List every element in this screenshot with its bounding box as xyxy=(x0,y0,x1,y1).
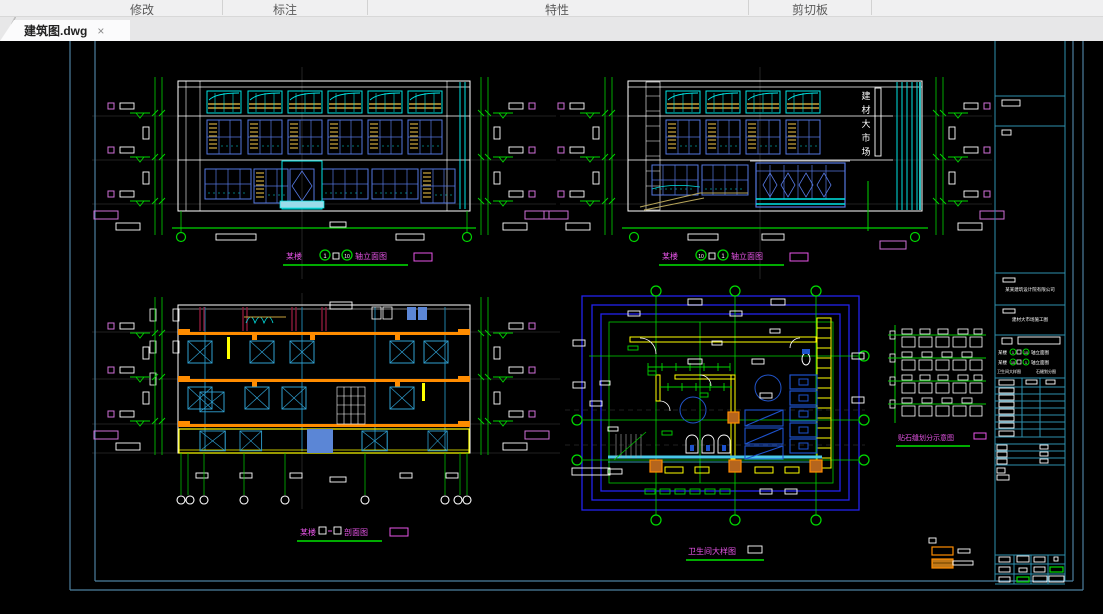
tab-close-icon[interactable]: × xyxy=(97,24,104,38)
svg-text:卫生间大样图: 卫生间大样图 xyxy=(688,546,736,556)
svg-text:剖面图: 剖面图 xyxy=(344,527,368,537)
ribbon-separator xyxy=(222,0,223,15)
titleblock-company: 某某建筑设计院有限公司 xyxy=(1005,286,1055,293)
svg-text:轴立面图: 轴立面图 xyxy=(1031,359,1049,366)
titleblock-column[interactable]: 某某建筑设计院有限公司 建材大市场施工图 某楼 1 10 轴立面图 某楼 10 … xyxy=(995,41,1065,584)
svg-text:大: 大 xyxy=(861,118,870,129)
ribbon-panel-modify[interactable]: 修改 xyxy=(130,1,154,18)
dimension-column[interactable] xyxy=(94,77,165,235)
svg-text:轴立面图: 轴立面图 xyxy=(355,251,387,261)
file-tab-bar: 建筑图.dwg × xyxy=(0,17,1103,41)
dimension-column[interactable] xyxy=(478,77,549,235)
svg-text:10: 10 xyxy=(1011,361,1015,365)
drawing-canvas[interactable]: 某楼 1 10 轴立面图 xyxy=(0,41,1103,614)
elevation-left-title: 某楼 1 10 轴立面图 xyxy=(283,250,432,265)
ribbon-panel-annotate[interactable]: 标注 xyxy=(273,1,297,18)
svg-text:卫生间大样图: 卫生间大样图 xyxy=(997,368,1021,374)
svg-text:场: 场 xyxy=(861,147,870,157)
dimension-column[interactable] xyxy=(544,77,615,235)
ribbon-separator xyxy=(367,0,368,15)
titleblock-project: 建材大市场施工图 xyxy=(1012,316,1048,323)
svg-text:某楼: 某楼 xyxy=(662,251,678,261)
svg-text:某楼: 某楼 xyxy=(998,349,1007,356)
ribbon-panel-strip: 修改 标注 特性 剪切板 xyxy=(0,0,1103,17)
svg-text:市: 市 xyxy=(861,132,870,143)
ribbon-separator xyxy=(871,0,872,15)
guide-lines xyxy=(92,67,992,509)
svg-text:1: 1 xyxy=(1012,351,1014,355)
svg-text:10: 10 xyxy=(698,254,704,260)
elevation-right-title: 某楼 10 1 轴立面图 xyxy=(659,250,808,265)
titleblock-drawing-list: 某楼 1 10 轴立面图 某楼 10 1 轴立面图 卫生间大样图 石缝划分图 xyxy=(997,349,1056,374)
ribbon-panel-properties[interactable]: 特性 xyxy=(545,1,569,18)
svg-text:材: 材 xyxy=(861,104,870,115)
stone-detail-title: 贴石缝划分示意图 xyxy=(898,433,954,442)
elevation-left-drawing[interactable] xyxy=(172,81,476,242)
svg-text:10: 10 xyxy=(344,254,350,260)
toilet-plan-drawing[interactable] xyxy=(572,286,869,525)
dimension-column[interactable] xyxy=(478,297,549,455)
ribbon-separator xyxy=(748,0,749,15)
svg-text:建: 建 xyxy=(861,90,870,101)
svg-text:1: 1 xyxy=(1025,361,1027,365)
ribbon-panel-clipboard[interactable]: 剪切板 xyxy=(792,1,828,18)
svg-text:某楼: 某楼 xyxy=(998,359,1007,366)
svg-text:某楼: 某楼 xyxy=(300,527,316,537)
svg-text:轴立面图: 轴立面图 xyxy=(731,251,763,261)
svg-text:轴立面图: 轴立面图 xyxy=(1031,349,1049,356)
elevation-right-drawing[interactable]: 建 材 大 市 场 xyxy=(622,81,928,249)
sheet-svg[interactable]: 某楼 1 10 轴立面图 xyxy=(0,41,1103,614)
cad-application-window: 修改 标注 特性 剪切板 建筑图.dwg × xyxy=(0,0,1103,614)
dimension-column[interactable] xyxy=(933,77,1004,235)
svg-text:10: 10 xyxy=(1024,351,1028,355)
plan-title: 卫生间大样图 xyxy=(686,546,764,560)
svg-text:石缝划分图: 石缝划分图 xyxy=(1036,368,1056,374)
material-legend[interactable] xyxy=(929,538,973,568)
building-sign-text: 建 材 大 市 场 xyxy=(861,90,870,157)
sheet-border[interactable] xyxy=(70,41,1083,590)
file-tab-label: 建筑图.dwg xyxy=(24,22,87,39)
file-tab-active[interactable]: 建筑图.dwg × xyxy=(0,20,130,41)
section-title: 某楼 剖面图 xyxy=(297,527,408,541)
stone-joint-detail-drawing[interactable]: 贴石缝划分示意图 xyxy=(888,325,986,446)
section-drawing[interactable] xyxy=(150,302,471,504)
svg-text:某楼: 某楼 xyxy=(286,251,302,261)
